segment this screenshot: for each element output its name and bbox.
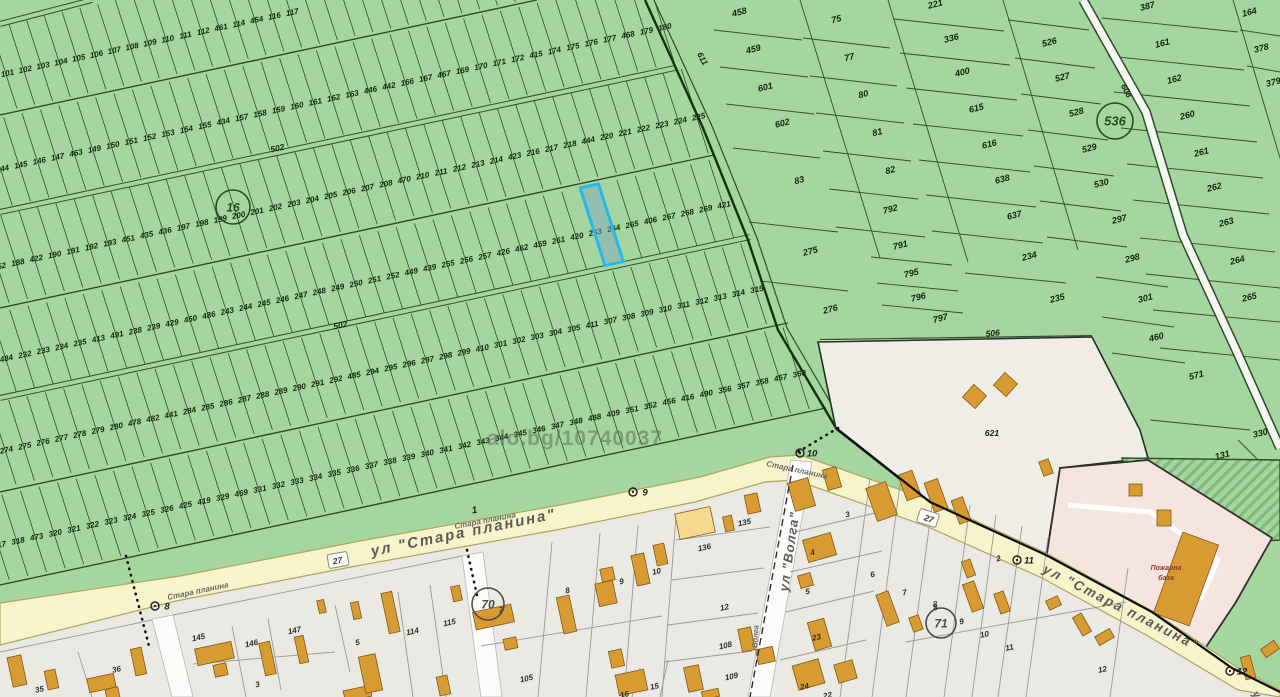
svg-text:621: 621 bbox=[985, 428, 999, 438]
map-svg: 1011021031041051061071081091101111124611… bbox=[0, 0, 1280, 697]
svg-text:71: 71 bbox=[934, 617, 948, 631]
svg-text:8: 8 bbox=[164, 602, 170, 613]
svg-text:506: 506 bbox=[985, 327, 1000, 338]
svg-text:11: 11 bbox=[1024, 556, 1034, 567]
svg-text:536: 536 bbox=[1104, 114, 1126, 129]
svg-text:10: 10 bbox=[807, 449, 818, 460]
svg-text:Волга: Волга bbox=[750, 625, 761, 648]
svg-text:7: 7 bbox=[499, 606, 504, 615]
cadastral-map-screenshot: 1011021031041051061071081091101111124611… bbox=[0, 0, 1280, 697]
svg-text:база: база bbox=[1158, 574, 1174, 582]
svg-text:Пожарна: Пожарна bbox=[1151, 565, 1182, 572]
svg-text:16: 16 bbox=[226, 201, 240, 215]
svg-text:9: 9 bbox=[642, 488, 648, 499]
svg-text:12: 12 bbox=[1237, 667, 1248, 678]
svg-text:70: 70 bbox=[481, 598, 495, 612]
